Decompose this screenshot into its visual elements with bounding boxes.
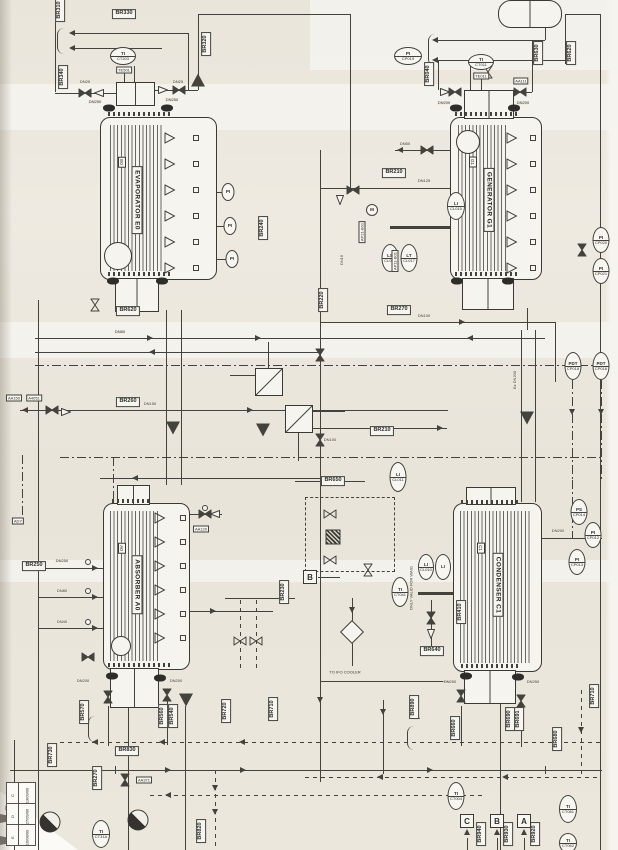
- pipe: [320, 738, 321, 746]
- instrument-function: LI: [441, 564, 445, 569]
- pipe: [72, 33, 188, 34]
- spray-nozzle-icon: [155, 633, 166, 644]
- instrument-tag: CP014: [572, 512, 587, 518]
- line-label: BR620: [566, 41, 576, 65]
- line-label: BR040: [424, 62, 434, 86]
- line-label: BR830: [115, 746, 139, 756]
- bracket-mark: [407, 726, 415, 750]
- pipe: [524, 838, 525, 850]
- instrument-bubble: PICP021: [593, 258, 610, 284]
- instrument-bubble: PDTCP016: [593, 352, 610, 380]
- instrument-bubble: TICT061: [559, 795, 577, 823]
- valve-icon: [46, 406, 59, 415]
- equipment-tag: TE011: [473, 73, 489, 80]
- valve-icon: [79, 89, 92, 98]
- pipe: [150, 795, 482, 796]
- pipe-size-text: DN200: [551, 529, 564, 533]
- instrument-bubble: LICL015: [447, 192, 465, 220]
- spray-nozzle-icon: [507, 133, 518, 144]
- spray-nozzle-icon: [507, 263, 518, 274]
- valve-handle-icon: [85, 619, 91, 625]
- instrument-bubble: LTCL017: [401, 244, 418, 272]
- spray-outlet: [193, 161, 199, 167]
- pipe-size-text: DN200: [76, 679, 89, 683]
- pipe: [572, 380, 573, 480]
- tube-sheet-ticks: [461, 664, 519, 668]
- spray-outlet: [530, 187, 536, 193]
- instrument-tag: CP018: [566, 366, 581, 372]
- flow-arrow-icon: [159, 739, 165, 745]
- equipment-tag: TE501: [116, 67, 132, 74]
- flow-arrow-icon: [520, 412, 534, 425]
- pipe: [124, 73, 125, 82]
- equipment-tag: AA371: [136, 777, 152, 784]
- flow-arrow-icon: [165, 792, 171, 798]
- line-label: BR930: [503, 822, 513, 846]
- instrument-tag: CL010: [419, 567, 433, 573]
- reducer-icon: [336, 195, 344, 205]
- instrument-bubble: M: [366, 204, 378, 216]
- instrument-bubble: PI: [226, 250, 239, 268]
- spray-outlet: [530, 213, 536, 219]
- note-text: TO IFO COOLER: [329, 671, 360, 676]
- flow-arrow-icon: [147, 335, 153, 341]
- spray-outlet: [193, 135, 199, 141]
- flow-arrow-icon: [380, 709, 386, 715]
- mixer-icon: [340, 620, 364, 644]
- nozzle: [154, 675, 166, 682]
- flow-arrow-icon: [165, 767, 171, 773]
- instrument-bubble: LICL010: [418, 554, 434, 580]
- spray-outlet: [180, 563, 186, 569]
- nozzle: [450, 105, 462, 112]
- valve-icon: [457, 690, 466, 703]
- equipment-tag: AP11-B01: [392, 250, 399, 272]
- vessel-tag-label: C1: [477, 543, 485, 554]
- pipe: [320, 681, 450, 682]
- nozzle: [106, 673, 118, 680]
- pipe: [320, 766, 321, 774]
- line-label: BR820: [196, 819, 206, 843]
- line-label: BR240: [258, 216, 268, 240]
- spray-nozzle-icon: [165, 211, 176, 222]
- flow-arrow-icon: [166, 422, 180, 435]
- line-label: BR720: [221, 699, 231, 723]
- pipe: [497, 838, 498, 850]
- pipe-size-text: DN80: [114, 330, 125, 334]
- pipe-size-text: DN250: [55, 559, 68, 563]
- flow-arrow-icon: [349, 607, 355, 613]
- nozzle: [460, 673, 472, 680]
- spray-outlet: [193, 239, 199, 245]
- pipe-size-text: DN150: [143, 402, 156, 406]
- note-text: ONLY VALID FOR WA01: [410, 566, 415, 610]
- line-label: BR210: [382, 168, 406, 178]
- flow-arrow-icon: [132, 475, 138, 481]
- nozzle: [103, 105, 115, 112]
- flow-arrow-icon: [397, 147, 403, 153]
- valve-icon: [421, 146, 434, 155]
- spray-nozzle-icon: [155, 513, 166, 524]
- spray-nozzle-icon: [155, 537, 166, 548]
- flow-arrow-icon: [240, 767, 246, 773]
- connector-letter: C: [460, 814, 474, 828]
- line-label: BR570: [79, 700, 89, 724]
- equipment-tag: A4051: [26, 395, 42, 402]
- pipe-size-text: DN40: [56, 620, 67, 624]
- instrument-tag: CP019: [395, 56, 421, 62]
- line-label: BR890: [409, 695, 419, 719]
- connector-letter: A: [517, 814, 531, 828]
- spray-nozzle-icon: [155, 585, 166, 596]
- pipe: [500, 738, 501, 746]
- pipe: [461, 706, 462, 746]
- heat-exchanger: [255, 368, 283, 396]
- vessel-name-label: CONDENSER C1: [493, 553, 504, 617]
- instrument-bubble: PI: [224, 217, 237, 235]
- reducer-icon: [94, 89, 104, 97]
- line-label: BR710: [589, 684, 599, 708]
- flow-arrow-icon: [247, 407, 253, 413]
- spray-nozzle-icon: [165, 237, 176, 248]
- pipe: [467, 838, 468, 850]
- instrument-bubble: PICP012: [585, 522, 602, 548]
- instrument-bubble: LICL011: [390, 462, 407, 492]
- pipe: [435, 40, 545, 41]
- valve-handle-icon: [85, 588, 91, 594]
- pipe-size-text: Ex DN200: [513, 370, 517, 389]
- instrument-tag: CT061: [560, 809, 576, 815]
- manway-icon: [456, 130, 480, 154]
- pipe-size-text: DN100: [323, 438, 336, 442]
- line-label: BR920: [530, 822, 540, 846]
- pipe: [601, 380, 602, 480]
- line-label: BR640: [420, 646, 444, 656]
- instrument-tag: CT203: [111, 56, 135, 62]
- pipe: [256, 600, 257, 670]
- vessel-name-label: EVAPORATOR E0: [132, 166, 143, 234]
- valve-outline-icon: [250, 637, 263, 646]
- line-label: BR270: [92, 766, 102, 790]
- pipe: [113, 457, 114, 502]
- pipe: [60, 742, 600, 743]
- flow-arrow-icon: [464, 829, 470, 835]
- instrument-function: PI: [230, 256, 234, 261]
- dashed-boundary: [305, 497, 395, 572]
- valve-icon: [82, 653, 95, 662]
- line-label: BR691: [514, 707, 524, 731]
- instrument-tag: CL011: [391, 477, 406, 483]
- line-label: BR940: [476, 822, 486, 846]
- flow-arrow-icon: [427, 767, 433, 773]
- valve-icon: [449, 88, 462, 97]
- tube-sheet-ticks: [455, 112, 517, 116]
- flow-arrow-icon: [92, 625, 98, 631]
- instrument-tag: CP020: [594, 240, 609, 246]
- spray-nozzle-icon: [507, 211, 518, 222]
- tube-sheet-ticks: [108, 272, 170, 276]
- flow-arrow-icon: [502, 774, 508, 780]
- flow-arrow-icon: [578, 727, 584, 733]
- line-label: BR540: [168, 704, 178, 728]
- pipe-size-text: DN250: [165, 98, 178, 102]
- flow-arrow-icon: [432, 37, 438, 43]
- spray-nozzle-icon: [507, 185, 518, 196]
- tube-sheet-ticks: [461, 500, 519, 504]
- reducer-icon: [427, 629, 435, 639]
- instrument-tag: CP016: [594, 366, 609, 372]
- valve-outline-icon: [234, 637, 247, 646]
- spray-nozzle-icon: [165, 159, 176, 170]
- pipe-size-text: DN25: [79, 80, 90, 84]
- pipe: [311, 411, 345, 412]
- pipe: [185, 766, 186, 774]
- flow-arrow-icon: [377, 774, 383, 780]
- manway-icon: [111, 636, 131, 656]
- line-label: BR650: [321, 476, 345, 486]
- bracket-mark: [57, 28, 65, 54]
- flow-arrow-icon: [212, 785, 218, 791]
- reducer-icon: [210, 510, 220, 518]
- flow-arrow-icon: [598, 409, 604, 415]
- instrument-bubble: TICT041: [392, 577, 409, 607]
- pipe: [108, 706, 109, 746]
- valve-outline-icon: [91, 299, 100, 312]
- vessel-tag-label: G1: [469, 156, 477, 167]
- instrument-bubble: PDTCP018: [565, 352, 582, 380]
- valve-icon: [578, 244, 587, 257]
- line-label: BR250: [22, 561, 46, 571]
- spray-nozzle-icon: [165, 263, 176, 274]
- flow-arrow-icon: [22, 407, 28, 413]
- reducer-icon: [61, 408, 71, 416]
- pipe: [527, 308, 528, 330]
- valve-outline-icon: [324, 556, 337, 565]
- pump-icon: [40, 812, 61, 833]
- pipe: [188, 611, 273, 612]
- spray-outlet: [180, 635, 186, 641]
- pipe: [22, 455, 23, 520]
- valve-icon: [427, 612, 436, 625]
- expansion-tank: [498, 0, 562, 28]
- valve-icon: [104, 691, 113, 704]
- instrument-tag: CT004: [449, 796, 464, 802]
- spray-nozzle-icon: [155, 561, 166, 572]
- pipe: [188, 33, 189, 90]
- line-label: BR560: [158, 704, 168, 728]
- line-label: BR660: [450, 716, 460, 740]
- flow-arrow-icon: [256, 424, 270, 437]
- instrument-tag: CT062: [560, 843, 576, 849]
- instrument-tag: CP013: [570, 562, 585, 568]
- pipe: [320, 188, 452, 189]
- valve-icon: [173, 86, 186, 95]
- flow-arrow-icon: [191, 74, 205, 87]
- pipe: [298, 431, 299, 461]
- pipe-size-text: DN250: [88, 100, 101, 104]
- instrument-tag: CP012: [586, 535, 601, 541]
- pipe: [320, 322, 555, 323]
- line-label: BR340: [58, 65, 68, 89]
- spray-nozzle-icon: [165, 185, 176, 196]
- vapor-duct: [166, 310, 182, 485]
- valve-outline-icon: [364, 564, 373, 577]
- pipe: [230, 375, 255, 376]
- connector-letter: B: [303, 570, 317, 584]
- pipe-size-text: DN50: [399, 142, 410, 146]
- manway-icon: [104, 242, 132, 270]
- pipe-size-text: DN100: [417, 314, 430, 318]
- pipe: [320, 150, 321, 482]
- valve-icon: [163, 689, 172, 702]
- instrument-bubble: TICT062: [559, 833, 577, 850]
- instrument-tag: CT31A: [93, 834, 109, 840]
- pipe-size-text: DN200: [169, 679, 182, 683]
- pipe: [350, 14, 351, 188]
- flow-arrow-icon: [317, 697, 323, 703]
- valve-handle-icon: [85, 559, 91, 565]
- spray-outlet: [180, 515, 186, 521]
- spray-outlet: [180, 611, 186, 617]
- pipe-size-text: DN200: [437, 101, 450, 105]
- pipe: [545, 26, 546, 40]
- pipe-size-text: DN250: [526, 680, 539, 684]
- instrument-tag: CT011: [469, 62, 493, 68]
- flow-arrow-icon: [467, 335, 473, 341]
- pipe-size-text: DN25: [172, 80, 183, 84]
- tube-sheet-ticks: [112, 499, 152, 503]
- pipe-size-text: DN80: [56, 589, 67, 593]
- flow-arrow-icon: [69, 45, 75, 51]
- spray-nozzle-icon: [165, 133, 176, 144]
- instrument-function: PI: [228, 223, 232, 228]
- valve-icon: [514, 88, 527, 97]
- pump-icon: [128, 810, 149, 831]
- line-label: BR630: [533, 41, 543, 65]
- revision-table: C13/09/00 D27/09/06 E16/08/99: [6, 782, 36, 846]
- line-label: BR320: [201, 32, 211, 56]
- nozzle: [451, 278, 463, 285]
- instrument-bubble: TICT004: [448, 782, 465, 810]
- nozzle: [502, 278, 514, 285]
- pipe: [115, 766, 116, 774]
- flow-arrow-icon: [212, 809, 218, 815]
- revision-row: E16/08/99: [7, 825, 36, 846]
- spray-nozzle-icon: [155, 609, 166, 620]
- instrument-bubble: LI: [435, 554, 451, 580]
- valve-icon: [347, 186, 360, 195]
- instrument-function: M: [370, 207, 374, 212]
- flow-arrow-icon: [239, 739, 245, 745]
- flow-arrow-icon: [521, 829, 527, 835]
- spray-outlet: [180, 539, 186, 545]
- pipe: [383, 766, 384, 774]
- pipe: [20, 410, 448, 411]
- vessel-tag-label: E0: [118, 157, 126, 168]
- instrument-bubble: PICP020: [593, 227, 610, 253]
- spray-outlet: [530, 239, 536, 245]
- flow-arrow-icon: [255, 335, 261, 341]
- equipment-tag: AA120: [193, 526, 209, 533]
- spray-outlet: [530, 265, 536, 271]
- filter-icon: [326, 530, 341, 545]
- flow-arrow-icon: [179, 694, 193, 707]
- pipe: [555, 322, 556, 382]
- pipe: [431, 600, 432, 650]
- spray-outlet: [530, 135, 536, 141]
- pipe: [545, 766, 546, 774]
- pipe-size-text: DN15: [340, 254, 344, 265]
- instrument-tag: CL015: [448, 206, 464, 212]
- spray-outlet: [180, 587, 186, 593]
- line-label: BR310: [55, 0, 65, 22]
- valve-icon: [121, 774, 130, 787]
- pipe: [438, 60, 439, 90]
- equipment-tag: AA111: [513, 78, 528, 85]
- spray-outlet: [193, 213, 199, 219]
- pipe-size-text: DN250: [443, 680, 456, 684]
- line-label: BR220: [318, 288, 328, 312]
- vessel-header: [116, 82, 155, 106]
- pipe: [500, 766, 501, 774]
- pid-diagram-canvas: C13/09/00 D27/09/06 E16/08/99 EVAPORATOR…: [0, 0, 618, 850]
- instrument-bubble: TICT31A: [92, 820, 110, 848]
- vessel-tag-label: A0: [118, 543, 126, 554]
- flow-arrow-icon: [69, 30, 75, 36]
- line-label: BR270: [387, 305, 411, 315]
- spray-outlet: [530, 161, 536, 167]
- pipe: [581, 690, 582, 777]
- pipe: [134, 66, 135, 82]
- equipment-tag: AP21-B01: [359, 221, 366, 243]
- flow-arrow-icon: [437, 425, 443, 431]
- connector-letter: B: [490, 814, 504, 828]
- pipe: [38, 300, 39, 850]
- flow-arrow-icon: [92, 739, 98, 745]
- tube-sheet-ticks: [108, 112, 170, 116]
- instrument-bubble: PICP019: [394, 47, 422, 65]
- nozzle: [508, 105, 520, 112]
- pipe-size-text: DN200: [516, 101, 529, 105]
- flow-arrow-icon: [149, 349, 155, 355]
- equipment-tag: ADY: [12, 518, 24, 525]
- instrument-bubble: TICT011: [468, 54, 494, 70]
- line-label: BR680: [552, 727, 562, 751]
- pipe: [240, 600, 241, 670]
- reducer-icon: [440, 88, 450, 96]
- valve-icon: [316, 349, 325, 362]
- line-label: BR410: [456, 600, 466, 624]
- nozzle: [107, 278, 119, 285]
- revision-row: C13/09/00: [7, 783, 36, 804]
- pipe: [565, 14, 600, 15]
- reducer-icon: [158, 86, 168, 94]
- instrument-bubble: PICP013: [569, 549, 586, 575]
- instrument-bubble: PSCP014: [571, 499, 588, 525]
- tube-sheet-ticks: [108, 663, 170, 667]
- pipe: [185, 738, 186, 746]
- pipe: [305, 777, 600, 778]
- line-label: BR210: [370, 426, 394, 436]
- flow-arrow-icon: [459, 319, 465, 325]
- valve-icon: [517, 695, 526, 708]
- flow-arrow-icon: [92, 565, 98, 571]
- pipe: [198, 14, 350, 15]
- line-label: BR260: [116, 397, 140, 407]
- instrument-bubble: TICT203: [110, 47, 136, 65]
- nozzle: [156, 278, 168, 285]
- revision-row: D27/09/06: [7, 804, 36, 825]
